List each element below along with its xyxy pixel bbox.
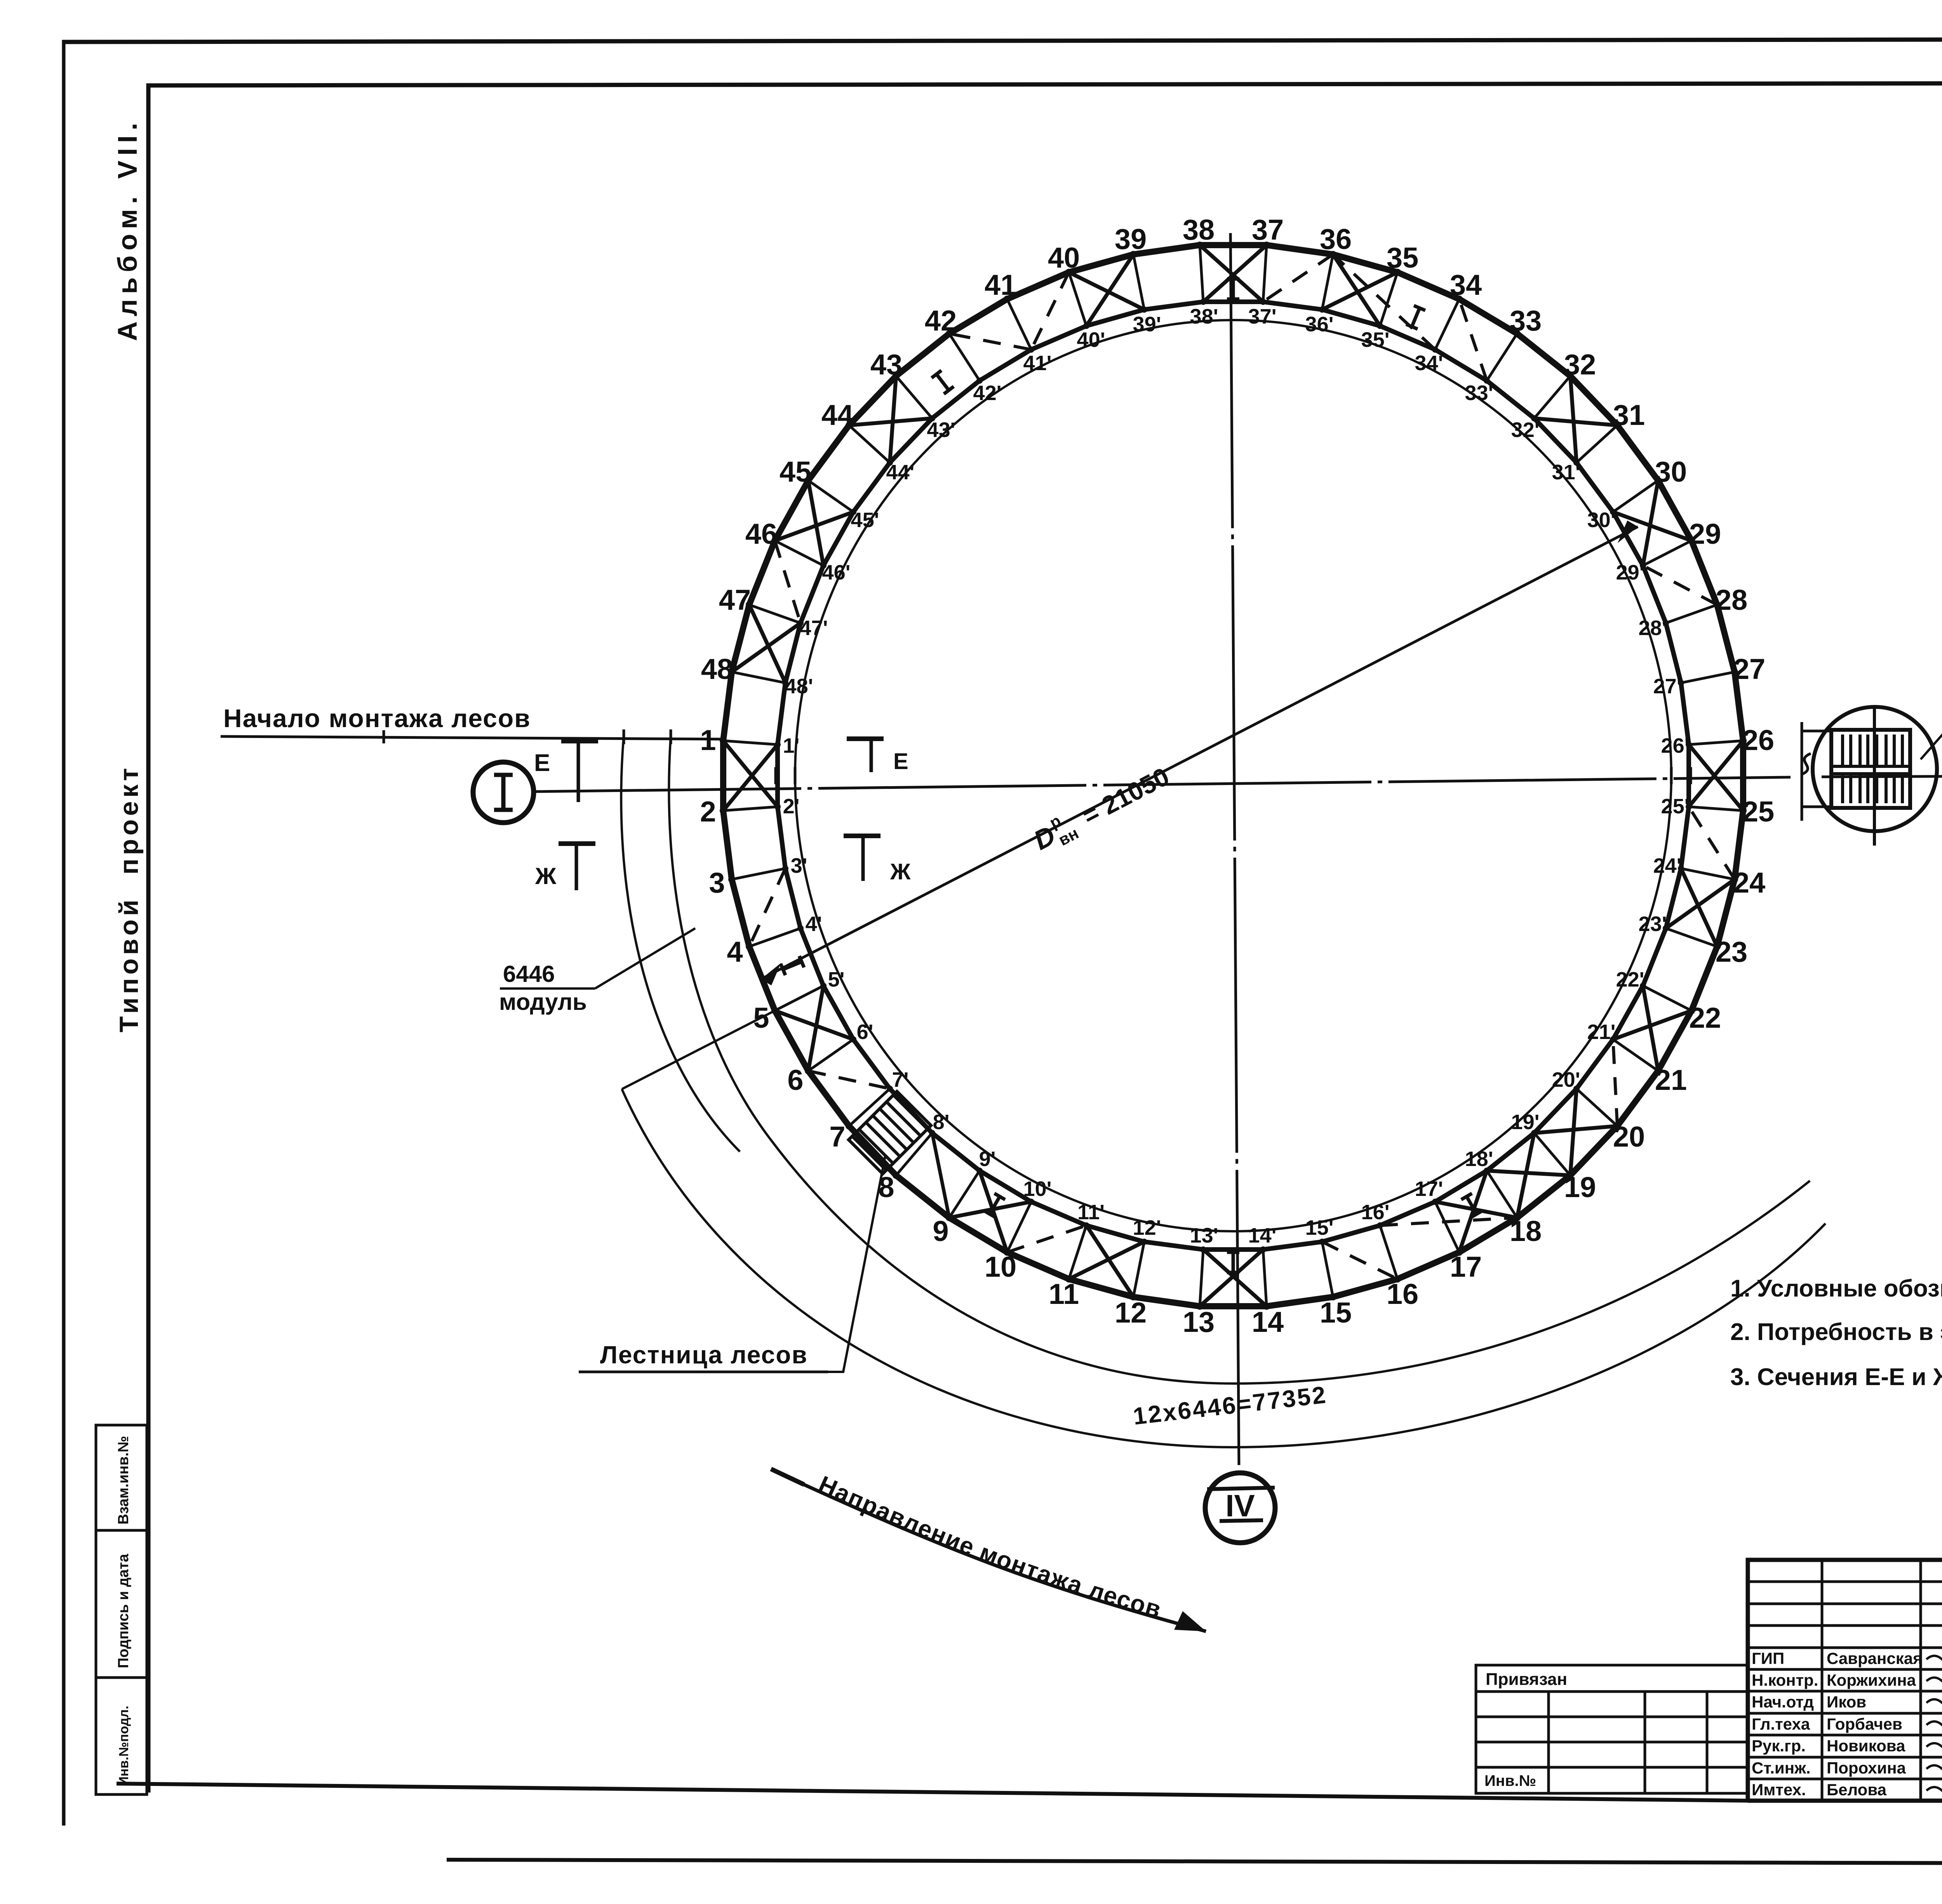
svg-text:Привязан: Привязан: [1486, 1670, 1567, 1689]
svg-text:Белова: Белова: [1827, 1780, 1887, 1799]
svg-text:43': 43': [927, 418, 955, 442]
svg-text:11': 11': [1077, 1201, 1105, 1224]
svg-text:40: 40: [1048, 242, 1080, 274]
svg-text:39': 39': [1133, 313, 1161, 336]
svg-text:Горбачев: Горбачев: [1827, 1715, 1902, 1733]
svg-text:2. Потребность в эламентах лес: 2. Потребность в эламентах лесов см.лист…: [1730, 1319, 1942, 1345]
svg-text:ГИП: ГИП: [1752, 1649, 1784, 1667]
svg-text:45: 45: [780, 456, 811, 488]
svg-text:32': 32': [1511, 418, 1540, 442]
svg-text:36: 36: [1320, 223, 1352, 255]
svg-text:13: 13: [1183, 1306, 1215, 1338]
svg-text:35: 35: [1387, 242, 1418, 274]
svg-text:6': 6': [857, 1020, 874, 1044]
svg-text:29: 29: [1689, 518, 1721, 550]
svg-text:Альбом. VII.: Альбом. VII.: [112, 118, 143, 341]
svg-text:6446: 6446: [503, 961, 555, 987]
svg-text:1. Условные обозначения лесов: 1. Условные обозначения лесов см.лист 6.: [1730, 1275, 1942, 1302]
svg-text:Ст.инж.: Ст.инж.: [1752, 1759, 1811, 1777]
svg-text:7: 7: [829, 1121, 845, 1153]
svg-text:14: 14: [1252, 1306, 1284, 1338]
svg-text:9': 9': [979, 1147, 996, 1171]
svg-text:22': 22': [1616, 968, 1644, 991]
svg-text:25': 25': [1661, 795, 1690, 818]
svg-text:10': 10': [1023, 1177, 1052, 1201]
svg-text:40': 40': [1077, 328, 1105, 352]
svg-text:47: 47: [719, 584, 751, 616]
svg-text:48': 48': [785, 675, 813, 698]
svg-text:33: 33: [1510, 305, 1542, 337]
svg-text:18: 18: [1510, 1215, 1542, 1247]
svg-text:26: 26: [1742, 724, 1774, 756]
svg-text:10: 10: [985, 1251, 1016, 1283]
svg-text:Взам.инв.№: Взам.инв.№: [115, 1436, 132, 1525]
svg-text:20': 20': [1552, 1068, 1580, 1091]
svg-text:43: 43: [870, 348, 902, 381]
svg-text:45': 45': [851, 508, 879, 532]
svg-text:46: 46: [745, 518, 777, 550]
svg-text:13': 13': [1190, 1224, 1218, 1247]
svg-text:Лестница лесов: Лестница лесов: [600, 1341, 808, 1369]
svg-text:Инв.№подл.: Инв.№подл.: [117, 1706, 131, 1786]
svg-text:19: 19: [1564, 1171, 1596, 1203]
svg-text:37': 37': [1248, 305, 1277, 328]
svg-text:29': 29': [1616, 561, 1644, 584]
svg-text:4': 4': [806, 912, 822, 936]
svg-text:38': 38': [1190, 305, 1218, 328]
svg-text:37: 37: [1252, 214, 1284, 246]
svg-text:Порохина: Порохина: [1827, 1759, 1906, 1777]
svg-text:20: 20: [1613, 1121, 1645, 1153]
svg-text:12': 12': [1133, 1216, 1161, 1239]
svg-text:16: 16: [1387, 1278, 1418, 1310]
svg-text:IV: IV: [1225, 1488, 1255, 1523]
svg-text:46': 46': [822, 561, 851, 584]
svg-text:21': 21': [1587, 1020, 1616, 1044]
svg-text:9: 9: [933, 1215, 948, 1247]
svg-text:Подпись и дата: Подпись и дата: [115, 1554, 132, 1668]
svg-text:Е: Е: [893, 749, 908, 774]
svg-text:44': 44': [886, 461, 915, 484]
svg-text:5': 5': [828, 968, 845, 991]
svg-text:1': 1': [783, 734, 800, 757]
svg-text:Начало монтажа лесов: Начало монтажа лесов: [223, 704, 531, 733]
svg-text:7': 7': [892, 1068, 909, 1091]
svg-text:38: 38: [1183, 214, 1215, 246]
svg-text:17: 17: [1450, 1251, 1482, 1283]
svg-text:Коржихина: Коржихина: [1827, 1671, 1916, 1689]
svg-text:33': 33': [1465, 381, 1493, 405]
svg-text:Новикова: Новикова: [1827, 1737, 1905, 1755]
svg-text:Нач.отд: Нач.отд: [1752, 1693, 1814, 1711]
svg-text:6: 6: [787, 1064, 803, 1096]
svg-text:Ж: Ж: [535, 863, 557, 889]
svg-text:15: 15: [1320, 1297, 1352, 1329]
svg-text:3': 3': [791, 854, 807, 877]
svg-text:Н.контр.: Н.контр.: [1752, 1671, 1818, 1689]
svg-text:Савранская: Савранская: [1827, 1649, 1923, 1667]
svg-text:35': 35': [1361, 328, 1390, 352]
svg-text:34': 34': [1415, 352, 1443, 375]
svg-text:34: 34: [1450, 269, 1482, 301]
svg-text:41: 41: [985, 269, 1016, 301]
svg-text:21: 21: [1655, 1064, 1687, 1096]
svg-text:31': 31': [1552, 461, 1580, 484]
svg-text:3: 3: [709, 867, 725, 899]
svg-text:31: 31: [1613, 399, 1645, 431]
svg-text:Рук.гр.: Рук.гр.: [1752, 1737, 1806, 1755]
svg-text:36': 36': [1305, 313, 1334, 336]
svg-text:Иков: Иков: [1827, 1693, 1866, 1711]
svg-text:25: 25: [1742, 795, 1774, 828]
svg-text:Инв.№: Инв.№: [1484, 1772, 1536, 1789]
svg-text:42': 42': [973, 381, 1002, 405]
svg-text:2: 2: [700, 795, 716, 828]
svg-text:44: 44: [821, 399, 853, 431]
svg-text:12: 12: [1115, 1297, 1147, 1329]
svg-text:48: 48: [701, 653, 733, 685]
svg-text:27': 27': [1653, 675, 1682, 698]
svg-text:Типовой проект: Типовой проект: [114, 764, 144, 1032]
svg-text:Е: Е: [534, 750, 550, 776]
svg-text:23: 23: [1716, 936, 1747, 968]
svg-text:28': 28': [1639, 616, 1667, 640]
svg-text:26': 26': [1661, 734, 1690, 757]
svg-text:32: 32: [1564, 348, 1596, 381]
svg-text:Ж: Ж: [890, 859, 911, 884]
svg-text:11: 11: [1049, 1278, 1079, 1310]
svg-text:41': 41': [1023, 352, 1052, 375]
svg-text:16': 16': [1361, 1201, 1390, 1224]
svg-text:2': 2': [783, 795, 800, 818]
svg-text:17': 17': [1415, 1177, 1443, 1201]
svg-text:18': 18': [1465, 1147, 1493, 1171]
svg-text:47': 47': [800, 616, 828, 640]
svg-text:14': 14': [1248, 1224, 1277, 1247]
svg-text:24: 24: [1733, 867, 1765, 899]
svg-text:3. Сечения Е-Е и Ж-Ж см.: 3. Сечения Е-Е и Ж-Ж см. лист 22.: [1730, 1364, 1942, 1391]
svg-text:23': 23': [1639, 912, 1667, 936]
svg-text:4: 4: [727, 936, 743, 968]
svg-text:30': 30': [1587, 508, 1616, 532]
svg-text:Гл.теха: Гл.теха: [1752, 1715, 1810, 1733]
svg-text:модуль: модуль: [499, 989, 587, 1015]
svg-text:28: 28: [1716, 584, 1747, 616]
svg-text:42: 42: [925, 305, 957, 337]
svg-text:30: 30: [1655, 456, 1687, 488]
svg-text:8': 8': [933, 1110, 950, 1134]
svg-text:19': 19': [1511, 1110, 1540, 1134]
svg-text:24': 24': [1653, 854, 1682, 877]
svg-text:22: 22: [1689, 1002, 1721, 1034]
svg-text:15': 15': [1305, 1216, 1334, 1239]
svg-text:39: 39: [1115, 223, 1147, 255]
svg-text:Имтех.: Имтех.: [1752, 1780, 1806, 1799]
svg-text:27: 27: [1733, 653, 1765, 685]
